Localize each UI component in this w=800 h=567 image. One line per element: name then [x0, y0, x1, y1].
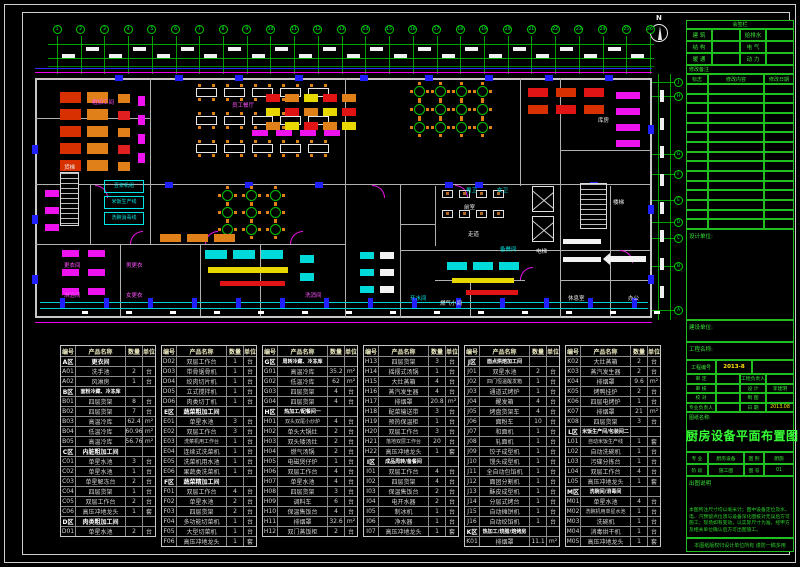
dimension-text-block: [133, 47, 146, 51]
toilet-seat-dot: [446, 212, 449, 215]
table-header-cell: 产品名称: [176, 346, 226, 356]
table-cell: 10: [529, 417, 546, 426]
dining-table: [196, 116, 217, 125]
table-section-row: J区面点烘焙加工间: [465, 356, 559, 366]
table-cell: K02: [566, 357, 580, 366]
table-cell: H12: [263, 527, 277, 536]
table-cell: [546, 527, 559, 536]
table-cell: M04: [566, 527, 580, 536]
corridor-tick: [302, 311, 308, 314]
table-cell: 台: [445, 377, 458, 386]
table-cell: C区: [61, 447, 75, 456]
table-cell: M区: [566, 487, 580, 496]
chair-dot: [226, 220, 229, 223]
table-row: I04电开水器2台: [364, 496, 458, 506]
table-cell: B03: [61, 417, 75, 426]
chair-dot: [410, 108, 413, 111]
revision-empty-cell: [686, 219, 708, 229]
room-label: 男卫: [466, 188, 477, 194]
equipment-block: [285, 108, 299, 116]
table-row: B04低温冷库60.96m²: [61, 426, 155, 436]
room-label: 更衣间: [64, 263, 81, 269]
table-cell: [125, 447, 142, 456]
table-cell: I01: [364, 467, 378, 476]
chair-dot: [418, 82, 421, 85]
table-header-row: 编号产品名称数量单位: [61, 346, 155, 356]
round-dining-table: [246, 190, 257, 201]
table-row: J10馒头成型机1台: [465, 456, 559, 466]
chair-dot: [481, 100, 484, 103]
table-cell: G01: [263, 367, 277, 376]
table-cell: 台: [142, 527, 155, 536]
table-cell: 果蔬类洗菜机: [176, 467, 226, 476]
table-row: M02洗碗机用单星水池1台: [566, 506, 660, 516]
table-row: F02单星水池2台: [162, 496, 256, 506]
table-cell: F02: [162, 497, 176, 506]
chair-dot: [418, 100, 421, 103]
approval-cell: [716, 384, 740, 394]
table-cell: 4: [327, 417, 344, 426]
table-cell: [142, 517, 155, 526]
table-cell: J06: [465, 417, 479, 426]
wall-segment: [200, 244, 201, 316]
dimension-text-block: [660, 230, 664, 242]
revision-empty-cell: [764, 210, 794, 220]
room-label: 开水间: [410, 296, 427, 302]
table-row: L04双层工作台4台: [566, 466, 660, 476]
corridor-tick: [522, 311, 528, 314]
room-label: 前室: [464, 205, 475, 211]
table-section-row: C区内脏粗加工间: [61, 446, 155, 456]
discipline-sign-cell: [766, 29, 794, 41]
dimension-text-block: [536, 54, 549, 58]
table-header-cell: 单位: [546, 346, 559, 356]
table-cell: 台: [445, 357, 458, 366]
table-row: L01自动米饭生产线1套: [566, 436, 660, 446]
project-no-value-cell: 2013-8: [716, 360, 752, 374]
meta-cell: 图 号: [744, 464, 764, 476]
dining-table: [252, 144, 273, 153]
revision-empty-cell: [708, 210, 764, 220]
table-cell: 1: [529, 447, 546, 456]
table-cell: 双门蒸饭柜: [277, 527, 327, 536]
table-cell: 3: [226, 427, 243, 436]
table-cell: 2: [327, 427, 344, 436]
door-marker: [425, 75, 433, 81]
table-cell: 台: [142, 487, 155, 496]
equipment-block: [360, 286, 374, 293]
chair-dot: [468, 126, 471, 129]
door-marker: [545, 75, 553, 81]
discipline-cell: 电 气: [740, 41, 766, 53]
table-cell: 台: [243, 357, 256, 366]
table-cell: I区: [364, 457, 378, 466]
dimension-text-block: [660, 258, 664, 270]
table-header-cell: 产品名称: [580, 346, 630, 356]
wall-segment: [520, 78, 521, 186]
corridor-tick: [214, 311, 220, 314]
round-dining-table: [456, 86, 467, 97]
table-row: K04排烟罩9.6m²: [566, 376, 660, 386]
revision-empty-cell: [708, 181, 764, 191]
revision-empty-cell: [708, 171, 764, 181]
table-cell: J14: [465, 497, 479, 506]
table-row: J06面粉车10台: [465, 416, 559, 426]
table-cell: 台: [546, 447, 559, 456]
table-cell: G区: [263, 357, 277, 366]
grid-bubble: 15: [385, 25, 394, 34]
table-cell: 面团分割机: [479, 477, 529, 486]
toilet-seat-dot: [480, 192, 483, 195]
direction-arrow: [610, 256, 646, 262]
equipment-block: [261, 250, 283, 259]
table-cell: 台: [445, 367, 458, 376]
room-label: 货梯: [64, 165, 75, 171]
table-cell: 4: [226, 487, 243, 496]
table-row: G04四层货架4台: [263, 396, 357, 406]
corridor-tick: [610, 311, 616, 314]
table-cell: 台: [243, 457, 256, 466]
table-cell: 1: [529, 377, 546, 386]
chair-dot: [198, 140, 201, 143]
dimension-text-block: [660, 174, 664, 186]
table-cell: 4: [428, 387, 445, 396]
table-cell: 电磁煲仔炉: [277, 457, 327, 466]
table-section-row: I区成品周转/备餐间: [364, 456, 458, 466]
table-section-row: E区蔬菜粗加工间: [162, 406, 256, 416]
wall-segment: [90, 185, 91, 244]
table-cell: 连续式洗菜机: [176, 447, 226, 456]
table-cell: M02: [566, 507, 580, 516]
table-cell: m²: [344, 367, 357, 376]
table-cell: 双层工作台: [176, 487, 226, 496]
revision-empty-cell: [764, 171, 794, 181]
revision-empty-cell: [686, 113, 708, 123]
chair-dot: [274, 186, 277, 189]
dimension-text-block: [442, 54, 455, 58]
table-cell: 套: [647, 537, 660, 546]
discipline-cell: 给排水: [740, 29, 766, 41]
table-cell: 更衣间: [75, 357, 125, 366]
table-cell: m²: [344, 517, 357, 526]
wall-segment: [150, 78, 151, 245]
table-cell: B01: [61, 397, 75, 406]
table-row: M03洗碗机1台: [566, 516, 660, 526]
equipment-block: [342, 122, 356, 130]
round-dining-table: [414, 104, 425, 115]
table-row: H09调料车6台: [263, 496, 357, 506]
revision-empty-cell: [708, 123, 764, 133]
toilet-seat-dot: [446, 192, 449, 195]
table-row: I01双层工作台4台: [364, 466, 458, 476]
dimension-text-block: [660, 286, 664, 298]
table-cell: 1: [125, 467, 142, 476]
dimension-text-block: [323, 47, 336, 51]
table-cell: 内脏粗加工间: [75, 447, 125, 456]
discipline-sign-cell: [712, 53, 740, 65]
revision-empty-cell: [764, 94, 794, 104]
table-cell: E03: [162, 437, 176, 446]
table-row: J03通道式烤炉1台: [465, 386, 559, 396]
table-row: E02双层工作台3台: [162, 426, 256, 436]
table-cell: 台: [344, 437, 357, 446]
table-cell: 台: [546, 497, 559, 506]
table-cell: 4: [327, 477, 344, 486]
table-cell: 2: [125, 497, 142, 506]
chair-dot: [439, 134, 442, 137]
corridor-tick: [258, 311, 264, 314]
chair-dot: [266, 194, 269, 197]
table-cell: m²: [647, 377, 660, 386]
table-cell: I02: [364, 477, 378, 486]
table-cell: 四层货架: [75, 487, 125, 496]
table-cell: [243, 407, 256, 416]
revision-header-cell: 标志: [686, 74, 708, 84]
chair-dot: [418, 134, 421, 137]
grid-bubble: C: [674, 234, 683, 243]
table-cell: J01: [465, 367, 479, 376]
grid-bubble: 9: [242, 25, 251, 34]
table-header-row: 编号产品名称数量单位: [465, 346, 559, 356]
table-cell: 燃气汤锅: [277, 447, 327, 456]
round-dining-table: [414, 86, 425, 97]
room-label: 办公: [628, 296, 639, 302]
door-marker: [32, 145, 38, 154]
table-cell: 调料车: [277, 497, 327, 506]
round-dining-table: [435, 122, 446, 133]
table-cell: 套: [243, 537, 256, 546]
table-cell: 洗碗机: [580, 517, 630, 526]
table-cell: J04: [465, 397, 479, 406]
table-cell: 双层工作台: [277, 467, 327, 476]
chair-dot: [254, 84, 257, 87]
table-cell: L区: [566, 427, 580, 436]
table-cell: 2: [529, 367, 546, 376]
chair-dot: [242, 211, 245, 214]
table-cell: 台: [142, 477, 155, 486]
table-cell: 4: [327, 467, 344, 476]
table-row: H08四层货架3台: [263, 486, 357, 496]
equipment-block: [323, 108, 337, 116]
equipment-table: 编号产品名称数量单位K02大灶蒸箱2台K03蒸汽发生器2台K04排烟罩9.6m²…: [565, 345, 661, 547]
room-label: 休息室: [568, 296, 585, 302]
revision-empty-cell: [764, 200, 794, 210]
chair-dot: [266, 211, 269, 214]
table-cell: 台: [647, 417, 660, 426]
chair-dot: [460, 100, 463, 103]
chair-dot: [452, 126, 455, 129]
approval-cell: 制 图: [740, 393, 766, 403]
corridor-tick: [346, 311, 352, 314]
table-cell: 台: [243, 417, 256, 426]
table-section-row: B区面粉冷藏、冷冻库: [61, 386, 155, 396]
grid-bubble: 19: [479, 25, 488, 34]
table-cell: F06: [162, 537, 176, 546]
table-cell: 台: [546, 517, 559, 526]
table-cell: 落地双层工作台: [378, 437, 428, 446]
dimension-text-block: [157, 54, 170, 58]
wall-segment: [35, 72, 652, 73]
table-row: D06肉类切丁机1台: [162, 396, 256, 406]
table-row: E01单星水池3台: [162, 416, 256, 426]
equipment-block: [342, 94, 356, 102]
table-cell: 1: [630, 507, 647, 516]
equipment-block: [563, 239, 601, 244]
room-label: 男更衣: [126, 263, 143, 269]
table-row: H03双头矮汤灶2台: [263, 436, 357, 446]
table-row: B02四层货架7台: [61, 406, 155, 416]
equipment-block: [300, 273, 314, 281]
chair-dot: [234, 211, 237, 214]
room-label: 备餐间: [500, 247, 517, 253]
round-dining-table: [414, 122, 425, 133]
chair-dot: [258, 194, 261, 197]
equipment-block: [304, 122, 318, 130]
equipment-block: [87, 109, 108, 120]
table-cell: m²: [142, 417, 155, 426]
table-header-cell: 产品名称: [277, 346, 327, 356]
round-dining-table: [222, 207, 233, 218]
equipment-block: [45, 190, 59, 197]
table-cell: M05: [566, 537, 580, 546]
table-cell: 多功能切菜机: [176, 517, 226, 526]
table-cell: 台: [647, 447, 660, 456]
table-section-row: M区洗碗间/消毒间: [566, 486, 660, 496]
column-marker: [148, 298, 153, 308]
chair-dot: [240, 98, 243, 101]
equipment-block: [118, 145, 130, 154]
table-cell: 电开水器: [378, 497, 428, 506]
table-cell: 台: [647, 367, 660, 376]
equipment-block: [160, 234, 181, 242]
table-cell: 四层货架: [75, 397, 125, 406]
dimension-text-block: [465, 47, 478, 51]
grid-bubble: F: [674, 170, 683, 179]
revision-empty-cell: [708, 142, 764, 152]
chair-dot: [242, 228, 245, 231]
table-row: J13酥皮成型机1台: [465, 486, 559, 496]
table-header-cell: 数量: [226, 346, 243, 356]
table-cell: 面粉冷藏、冷冻库: [75, 387, 125, 396]
table-cell: C05: [61, 497, 75, 506]
table-cell: 4: [630, 497, 647, 506]
drawing-name-label: 图纸名称:: [689, 414, 711, 421]
equipment-block: [118, 111, 130, 120]
equipment-block: [380, 286, 394, 293]
equipment-block: [205, 250, 227, 259]
table-cell: 台: [647, 507, 660, 516]
chair-dot: [460, 134, 463, 137]
revision-empty-cell: [764, 152, 794, 162]
chair-dot: [460, 82, 463, 85]
table-cell: 8: [125, 397, 142, 406]
table-cell: [630, 427, 647, 436]
table-row: C05双层工作台2台: [61, 496, 155, 506]
table-row: G02低温冷库62m²: [263, 376, 357, 386]
wall-segment: [40, 308, 648, 309]
grid-bubble: 6: [171, 25, 180, 34]
table-cell: 台: [344, 447, 357, 456]
table-cell: 9.6: [630, 377, 647, 386]
table-cell: 台: [142, 397, 155, 406]
table-row: I03保温售饭台2台: [364, 486, 458, 496]
equipment-block: [60, 126, 81, 137]
table-cell: C06: [61, 507, 75, 516]
table-row: L03污碟分拣台1台: [566, 456, 660, 466]
project-name-label: 工程名称:: [689, 345, 713, 353]
table-cell: 双层工作台: [176, 357, 226, 366]
table-cell: 台: [647, 517, 660, 526]
table-cell: 和面机: [479, 427, 529, 436]
table-cell: 馒头成型机: [479, 457, 529, 466]
table-row: F05大型切菜机1台: [162, 526, 256, 536]
equipment-block: [452, 278, 514, 283]
table-header-cell: 单位: [142, 346, 155, 356]
revision-empty-cell: [764, 181, 794, 191]
toilet-seat-dot: [480, 212, 483, 215]
table-cell: 蔬菜精加工间: [176, 477, 226, 486]
dimension-text-block: [252, 54, 265, 58]
table-row: H02单头大锅灶2台: [263, 426, 357, 436]
table-cell: F01: [162, 487, 176, 496]
chair-dot: [258, 228, 261, 231]
table-cell: 台: [445, 477, 458, 486]
table-row: I02四层货架4台: [364, 476, 458, 486]
corridor-tick: [390, 311, 396, 314]
chair-dot: [431, 126, 434, 129]
equipment-table: 编号产品名称数量单位D02双层工作台1台D03带骨锯骨机1台D04绞肉切片机1台…: [161, 345, 257, 547]
revision-empty-cell: [764, 142, 794, 152]
table-cell: H21: [364, 437, 378, 446]
table-cell: 21: [630, 407, 647, 416]
table-cell: 台: [647, 357, 660, 366]
equipment-block: [266, 122, 280, 130]
grid-bubble: 5: [147, 25, 156, 34]
grid-bubble: 2: [76, 25, 85, 34]
dimension-line: [48, 58, 654, 59]
table-cell: 台: [344, 397, 357, 406]
table-cell: 3: [327, 487, 344, 496]
table-cell: 32.6: [327, 517, 344, 526]
table-row: M05高压冲地龙头1套: [566, 536, 660, 546]
chair-dot: [310, 154, 313, 157]
equipment-block: [60, 109, 81, 120]
project-no-label-cell: 工程编号: [686, 360, 716, 374]
round-dining-table: [456, 122, 467, 133]
dimension-line: [670, 74, 671, 320]
chair-dot: [234, 228, 237, 231]
corridor-tick: [478, 311, 484, 314]
table-cell: 肉类粗加工间: [75, 517, 125, 526]
equipment-block: [466, 290, 518, 295]
dining-table: [196, 88, 217, 97]
table-cell: 套: [445, 527, 458, 536]
dimension-text-block: [631, 54, 644, 58]
grid-bubble: 16: [408, 25, 417, 34]
table-cell: L01: [566, 437, 580, 446]
chair-dot: [212, 140, 215, 143]
chair-dot: [226, 112, 229, 115]
notes-paragraph: 本图所注尺寸均以毫米计；图中设备定位及水、电、汽预留点位须与设备深化图核对无误后…: [689, 508, 791, 534]
chair-dot: [226, 98, 229, 101]
table-cell: 台: [344, 417, 357, 426]
table-cell: D01: [61, 527, 75, 536]
door-marker: [360, 75, 368, 81]
equipment-block: [616, 92, 640, 99]
table-cell: 1: [630, 477, 647, 486]
corridor-tick: [434, 311, 440, 314]
grid-bubble: 23: [574, 25, 583, 34]
